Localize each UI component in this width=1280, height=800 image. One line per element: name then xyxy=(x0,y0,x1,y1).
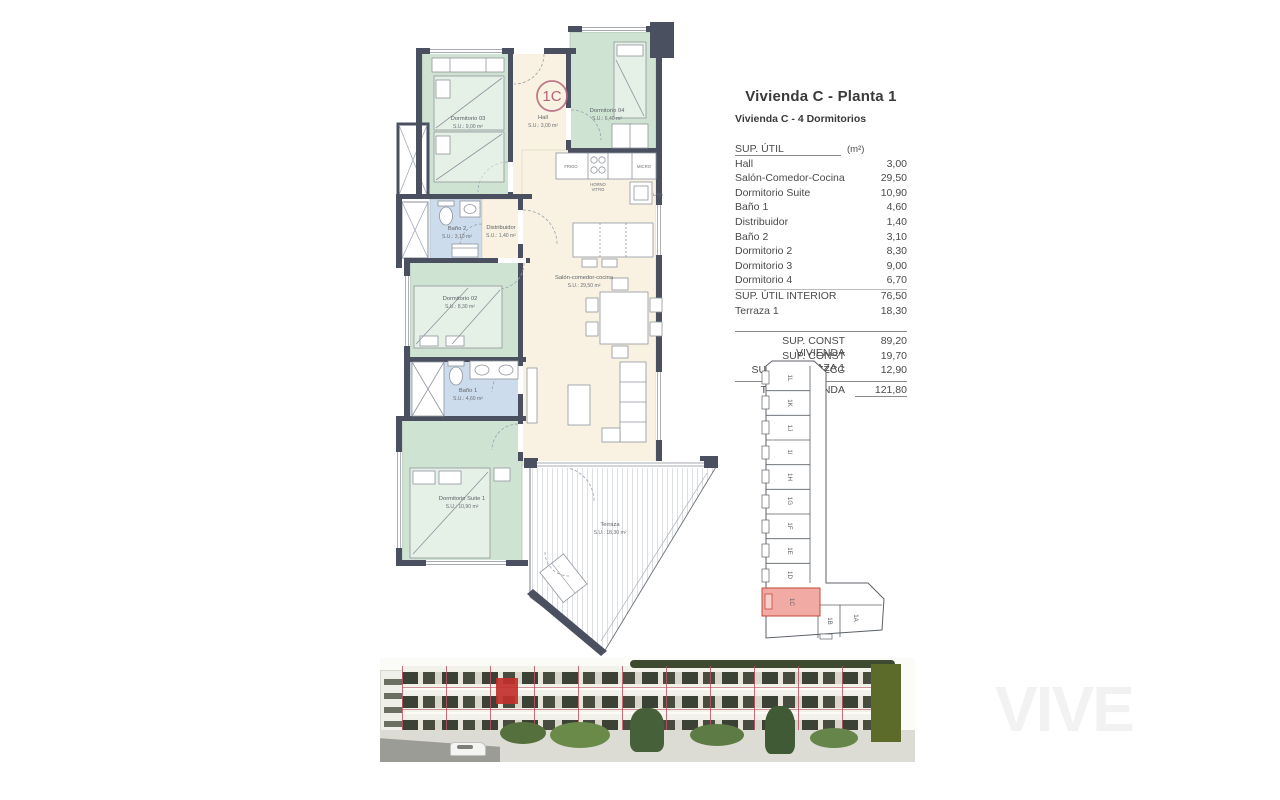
table-row-subtotal: SUP. ÚTIL INTERIOR76,50 xyxy=(735,289,907,305)
car xyxy=(450,742,486,756)
shrub xyxy=(690,724,744,746)
table-row: Baño 23,10 xyxy=(735,231,907,246)
svg-text:S.U.: 1,40 m²: S.U.: 1,40 m² xyxy=(486,233,516,239)
horno-label-2: VITRO xyxy=(592,187,606,192)
highlighted-unit-marker xyxy=(496,678,518,704)
table-row: Salón-Comedor-Cocina29,50 xyxy=(735,172,907,187)
area-table-panel: Vivienda C - Planta 1 Vivienda C - 4 Dor… xyxy=(735,88,907,399)
unit-badge-label: 1C xyxy=(542,88,561,105)
table-row: Dormitorio Suite10,90 xyxy=(735,187,907,202)
svg-text:1D: 1D xyxy=(786,571,793,579)
shrub xyxy=(500,722,546,744)
sup-util-table: SUP. ÚTIL (m²) Hall3,00 Salón-Comedor-Co… xyxy=(735,143,907,319)
svg-text:1C: 1C xyxy=(788,598,795,606)
svg-text:1K: 1K xyxy=(786,399,793,407)
summary-row: SUP. CONST VIVIENDA89,20 xyxy=(735,335,907,350)
page-subtitle: Vivienda C - 4 Dormitorios xyxy=(735,113,907,125)
svg-text:Terraza: Terraza xyxy=(600,522,620,528)
svg-text:1G: 1G xyxy=(786,497,793,505)
svg-text:Distribuidor: Distribuidor xyxy=(486,225,515,231)
svg-text:S.U.: 3,00 m²: S.U.: 3,00 m² xyxy=(528,123,558,129)
plan-sheet: FRIGO MICRO HORNO VITRO LAVA 1C Dormitor… xyxy=(0,0,1280,800)
svg-text:S.U.: 6,40 m²: S.U.: 6,40 m² xyxy=(592,116,622,122)
svg-text:1I: 1I xyxy=(786,449,793,454)
palm-tree xyxy=(765,706,795,754)
svg-text:Dormitorio 02: Dormitorio 02 xyxy=(443,296,478,302)
table-row: Dormitorio 39,00 xyxy=(735,260,907,275)
table-row: Dormitorio 28,30 xyxy=(735,245,907,260)
svg-text:1L: 1L xyxy=(786,375,793,382)
frigo-label: FRIGO xyxy=(564,164,578,169)
svg-text:S.U.: 3,10 m²: S.U.: 3,10 m² xyxy=(442,234,472,240)
svg-text:1H: 1H xyxy=(786,473,793,481)
svg-text:Dormitorio 04: Dormitorio 04 xyxy=(590,108,626,114)
lava-label: LAVA xyxy=(653,192,663,197)
page-title: Vivienda C - Planta 1 xyxy=(735,88,907,105)
svg-text:S.U.: 9,00 m²: S.U.: 9,00 m² xyxy=(453,124,483,130)
building-key-plan: 1L 1K 1J 1I 1H 1G 1F 1E 1D 1C 1B 1A xyxy=(755,355,895,650)
table-header: SUP. ÚTIL (m²) xyxy=(735,143,907,158)
table-row: Distribuidor1,40 xyxy=(735,216,907,231)
shrub xyxy=(550,722,610,748)
svg-text:1F: 1F xyxy=(786,522,793,529)
svg-text:S.U.: 4,60 m²: S.U.: 4,60 m² xyxy=(453,396,483,402)
svg-text:Dormitorio Suite 1: Dormitorio Suite 1 xyxy=(439,496,485,502)
svg-text:Hall: Hall xyxy=(538,115,548,121)
table-row: Baño 14,60 xyxy=(735,201,907,216)
svg-text:1A: 1A xyxy=(852,614,859,622)
svg-text:Baño 1: Baño 1 xyxy=(459,388,477,394)
svg-text:1J: 1J xyxy=(786,425,793,432)
palm-tree xyxy=(630,708,664,752)
table-row: Dormitorio 46,70 xyxy=(735,274,907,289)
stair-shaft-icon xyxy=(398,124,428,196)
building-elevation-render xyxy=(380,658,915,762)
watermark: VIVE xyxy=(995,672,1133,746)
svg-text:Dormitorio 03: Dormitorio 03 xyxy=(451,116,486,122)
svg-text:S.U.: 29,50 m²: S.U.: 29,50 m² xyxy=(568,283,601,289)
table-row: Terraza 118,30 xyxy=(735,305,907,320)
floorplan-drawing: FRIGO MICRO HORNO VITRO LAVA 1C Dormitor… xyxy=(390,18,730,668)
terrace xyxy=(527,467,716,656)
duct-shaft-icon xyxy=(402,202,428,258)
table-row: Hall3,00 xyxy=(735,158,907,173)
svg-text:S.U.: 10,90 m²: S.U.: 10,90 m² xyxy=(446,504,479,510)
shrub xyxy=(810,728,858,748)
svg-text:1B: 1B xyxy=(826,617,833,625)
svg-text:Baño 2: Baño 2 xyxy=(448,226,466,232)
svg-text:1E: 1E xyxy=(786,547,793,555)
hedge-block xyxy=(871,664,901,742)
svg-text:S.U.: 18,30 m²: S.U.: 18,30 m² xyxy=(594,530,627,536)
svg-text:Salón-comedor-cocina: Salón-comedor-cocina xyxy=(555,275,614,281)
micro-label: MICRO xyxy=(637,164,652,169)
svg-text:S.U.: 8,30 m²: S.U.: 8,30 m² xyxy=(445,304,475,310)
